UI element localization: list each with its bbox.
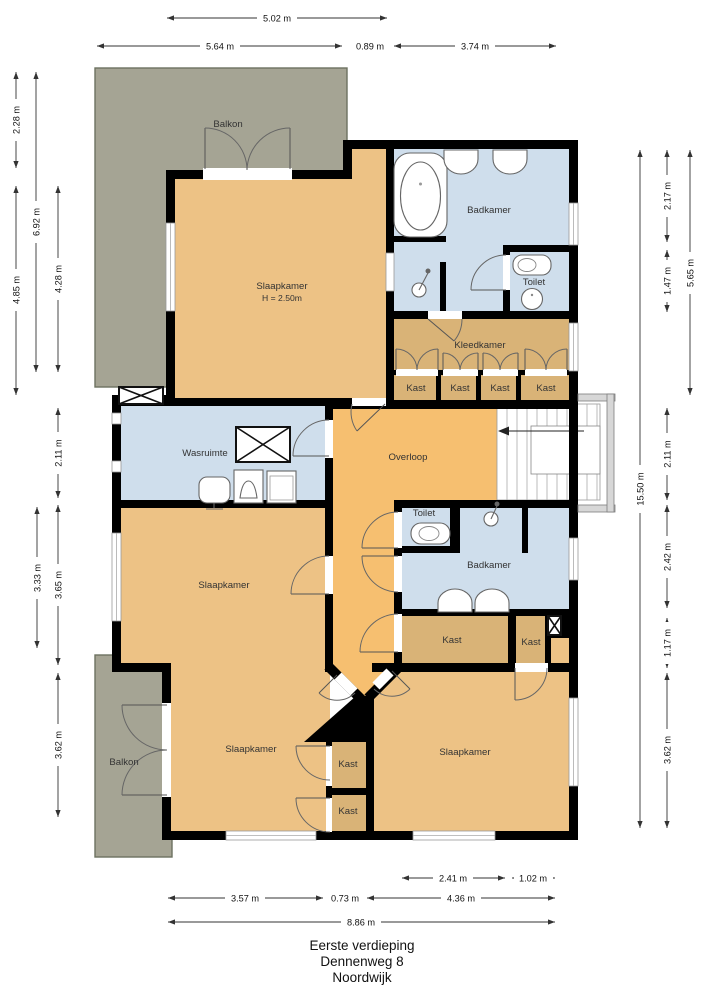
sink-icon (493, 150, 527, 174)
window (569, 323, 578, 371)
dimension-right-6: 2.42 m (662, 505, 673, 608)
label-kast-col-2: Kast (338, 806, 358, 817)
svg-text:5.02 m: 5.02 m (263, 14, 291, 24)
pocket-door (386, 253, 394, 291)
svg-text:3.57 m: 3.57 m (231, 894, 259, 904)
svg-text:3.74 m: 3.74 m (461, 42, 489, 52)
window (112, 413, 121, 424)
dimension-top-2: 5.64 m (97, 40, 342, 52)
balcony-bottom (95, 655, 172, 857)
sink-icon (475, 589, 509, 612)
svg-text:1.17 m: 1.17 m (663, 629, 673, 657)
label-kast-mid-right: Kast (521, 637, 541, 648)
dimension-right-2: 2.17 m (662, 150, 673, 242)
label-kast-col-1: Kast (338, 759, 358, 770)
label-toilet-mid: Toilet (413, 508, 436, 519)
svg-text:2.11 m: 2.11 m (663, 440, 673, 468)
dimension-bottom-3: 3.57 m (168, 892, 323, 904)
plan-title-street: Dennenweg 8 (320, 954, 403, 969)
window (112, 533, 121, 621)
dimension-bottom-1: 2.41 m (402, 872, 505, 884)
window (226, 831, 316, 840)
svg-text:1.02 m: 1.02 m (519, 874, 547, 884)
label-badkamer-mid: Badkamer (467, 560, 512, 571)
svg-text:5.65 m: 5.65 m (686, 259, 696, 287)
dimension-top-1: 5.02 m (167, 12, 387, 24)
dimension-top-3: 0.89 m (351, 40, 389, 52)
label-kast-4: Kast (536, 383, 556, 394)
toilet-icon (411, 523, 450, 544)
label-kleedkamer: Kleedkamer (454, 340, 506, 351)
dimension-right-4: 1.47 m (662, 250, 673, 312)
window (166, 223, 175, 311)
window (569, 203, 578, 245)
dimension-bottom-5: 4.36 m (367, 892, 555, 904)
dimension-left-7: 3.65 m (53, 505, 64, 665)
svg-text:8.86 m: 8.86 m (347, 918, 375, 928)
svg-text:3.62 m: 3.62 m (663, 736, 673, 764)
svg-text:15.50 m: 15.50 m (636, 472, 646, 506)
dimension-left-2: 6.92 m (31, 72, 42, 372)
plan-title-city: Noordwijk (332, 970, 392, 985)
dimension-left-1: 2.28 m (11, 72, 22, 168)
shaft-icon (119, 387, 163, 404)
window (413, 831, 495, 840)
dryer-icon (267, 471, 296, 503)
dimension-right-7: 1.17 m (662, 618, 673, 668)
dimension-right-3: 5.65 m (685, 150, 696, 395)
svg-text:2.11 m: 2.11 m (54, 439, 64, 467)
stair-void (531, 426, 600, 474)
dimension-right-1: 15.50 m (635, 150, 646, 828)
label-kast-1: Kast (406, 383, 426, 394)
dimension-top-4: 3.74 m (394, 40, 556, 52)
label-kast-3: Kast (490, 383, 510, 394)
bathtub-icon (394, 153, 447, 237)
label-slaapkamer-mid: Slaapkamer (198, 580, 250, 591)
stairwell (497, 404, 600, 500)
dimension-left-8: 3.62 m (53, 673, 64, 817)
plan-title-floor: Eerste verdieping (309, 938, 414, 953)
label-kast-2: Kast (450, 383, 470, 394)
skylight-icon (236, 427, 290, 462)
dimension-bottom-6: 8.86 m (168, 916, 555, 928)
label-slaapkamer-tl-height: H = 2.50m (262, 293, 302, 303)
svg-text:4.28 m: 4.28 m (54, 265, 64, 293)
dimension-bottom-4: 0.73 m (326, 892, 364, 904)
dimension-right-5: 2.11 m (662, 408, 673, 500)
svg-text:1.47 m: 1.47 m (663, 267, 673, 295)
svg-text:3.62 m: 3.62 m (54, 731, 64, 759)
label-slaapkamer-bl: Slaapkamer (225, 744, 277, 755)
dimension-left-5: 2.11 m (53, 408, 64, 498)
svg-text:0.73 m: 0.73 m (331, 894, 359, 904)
window (112, 461, 121, 472)
svg-text:2.42 m: 2.42 m (663, 543, 673, 571)
sink-icon (438, 589, 472, 612)
dimension-left-6: 3.33 m (32, 507, 43, 648)
label-slaapkamer-br: Slaapkamer (439, 747, 491, 758)
vent-icon (548, 616, 561, 635)
dimension-left-3: 4.85 m (11, 186, 22, 395)
washing-machine-icon (234, 470, 263, 503)
svg-text:2.41 m: 2.41 m (439, 874, 467, 884)
sink-icon (444, 150, 478, 174)
svg-text:2.28 m: 2.28 m (12, 106, 22, 134)
label-kast-mid-left: Kast (442, 635, 462, 646)
label-toilet-top: Toilet (523, 277, 546, 288)
svg-text:4.36 m: 4.36 m (447, 894, 475, 904)
dimension-left-4: 4.28 m (53, 186, 64, 372)
label-balkon-bottom: Balkon (109, 757, 138, 768)
washbasin-icon (522, 289, 543, 310)
toilet-icon (513, 255, 551, 275)
label-balkon-top: Balkon (213, 119, 242, 130)
floor-plan-page: Balkon Slaapkamer H = 2.50m Badkamer Toi… (0, 0, 707, 1000)
label-overloop: Overloop (389, 452, 428, 463)
label-badkamer-top: Badkamer (467, 205, 512, 216)
svg-text:6.92 m: 6.92 m (32, 208, 42, 236)
floor-plan: Balkon Slaapkamer H = 2.50m Badkamer Toi… (0, 0, 707, 1000)
svg-text:2.17 m: 2.17 m (663, 182, 673, 210)
svg-text:3.33 m: 3.33 m (33, 564, 43, 592)
window (569, 698, 578, 786)
window (569, 538, 578, 580)
svg-text:0.89 m: 0.89 m (356, 42, 384, 52)
label-slaapkamer-tl: Slaapkamer (256, 281, 308, 292)
dimension-right-8: 3.62 m (662, 673, 673, 828)
svg-text:3.65 m: 3.65 m (54, 571, 64, 599)
dimension-bottom-2: 1.02 m (512, 872, 555, 884)
svg-text:5.64 m: 5.64 m (206, 42, 234, 52)
title-block: Eerste verdieping Dennenweg 8 Noordwijk (309, 938, 414, 985)
svg-text:4.85 m: 4.85 m (12, 276, 22, 304)
label-wasruimte: Wasruimte (182, 448, 228, 459)
